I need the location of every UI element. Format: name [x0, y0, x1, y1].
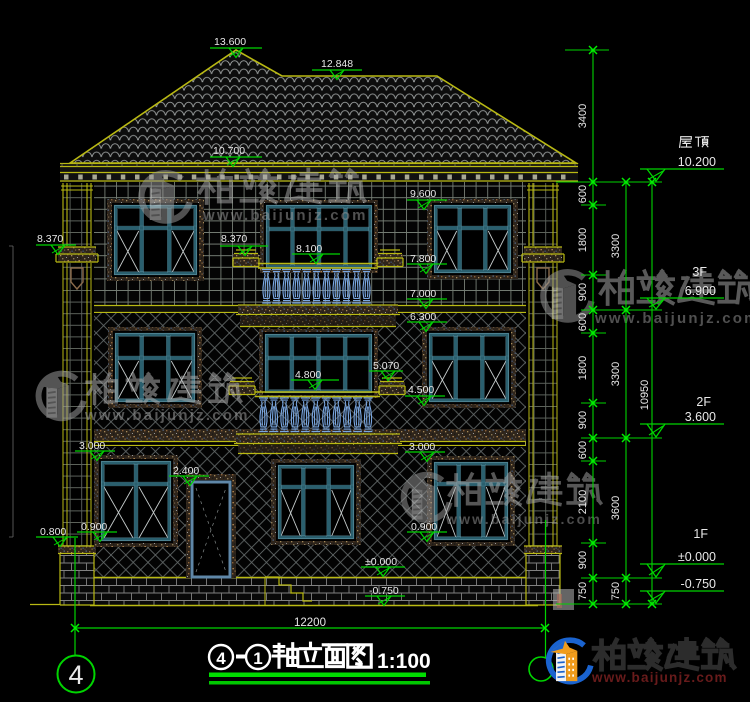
svg-text:0.800: 0.800 — [40, 526, 66, 538]
svg-text:3600: 3600 — [610, 496, 622, 520]
svg-text:4: 4 — [68, 660, 83, 690]
svg-text:600: 600 — [577, 185, 589, 203]
svg-text:4.800: 4.800 — [295, 369, 321, 381]
svg-text:4: 4 — [216, 649, 226, 668]
svg-text:±0.000: ±0.000 — [678, 550, 716, 564]
svg-text:4.500: 4.500 — [408, 384, 434, 396]
svg-text:1: 1 — [253, 649, 262, 668]
svg-text:900: 900 — [577, 411, 589, 429]
svg-text:3.600: 3.600 — [685, 410, 716, 424]
svg-text:8.370: 8.370 — [221, 233, 247, 245]
svg-text:10950: 10950 — [639, 380, 651, 411]
svg-text:10.200: 10.200 — [678, 155, 716, 169]
svg-text:www.baijunjz.com: www.baijunjz.com — [202, 207, 368, 224]
svg-text:www.baijunjz.com: www.baijunjz.com — [594, 310, 750, 327]
svg-text:1800: 1800 — [577, 228, 589, 252]
svg-text:12.848: 12.848 — [321, 58, 353, 70]
svg-text:1F: 1F — [693, 527, 708, 541]
svg-text:13.600: 13.600 — [214, 36, 246, 48]
svg-text:±0.000: ±0.000 — [365, 556, 397, 568]
svg-text:2100: 2100 — [577, 490, 589, 514]
svg-text:7.800: 7.800 — [410, 253, 436, 265]
svg-text:3.000: 3.000 — [79, 440, 105, 452]
svg-text:750: 750 — [577, 582, 589, 600]
svg-text:3.000: 3.000 — [409, 441, 435, 453]
svg-text:www.baijunjz.com: www.baijunjz.com — [84, 407, 250, 424]
svg-text:9.600: 9.600 — [410, 188, 436, 200]
svg-text:2.400: 2.400 — [173, 465, 199, 477]
svg-text:3300: 3300 — [610, 362, 622, 386]
svg-text:900: 900 — [577, 551, 589, 569]
svg-text:7.000: 7.000 — [410, 288, 436, 300]
svg-text:0.900: 0.900 — [81, 521, 107, 533]
svg-text:900: 900 — [577, 283, 589, 301]
svg-text:0.900: 0.900 — [411, 521, 437, 533]
svg-text:-0.750: -0.750 — [681, 577, 716, 591]
svg-text:3F: 3F — [692, 265, 707, 279]
svg-text:1:100: 1:100 — [377, 650, 431, 673]
svg-text:3400: 3400 — [577, 104, 589, 128]
svg-text:10.700: 10.700 — [213, 145, 245, 157]
svg-text:3300: 3300 — [610, 234, 622, 258]
svg-text:8.100: 8.100 — [296, 243, 322, 255]
svg-text:600: 600 — [577, 441, 589, 459]
svg-text:750: 750 — [610, 582, 622, 600]
svg-text:5.070: 5.070 — [373, 360, 399, 372]
svg-text:-0.750: -0.750 — [369, 585, 399, 597]
svg-text:8.370: 8.370 — [37, 233, 63, 245]
svg-text:12200: 12200 — [294, 617, 326, 629]
svg-text:2F: 2F — [696, 395, 711, 409]
svg-text:6.900: 6.900 — [685, 284, 716, 298]
svg-text:600: 600 — [577, 313, 589, 331]
svg-text:1800: 1800 — [577, 356, 589, 380]
svg-text:www.baijunjz.com: www.baijunjz.com — [591, 670, 728, 685]
svg-text:6.300: 6.300 — [410, 311, 436, 323]
